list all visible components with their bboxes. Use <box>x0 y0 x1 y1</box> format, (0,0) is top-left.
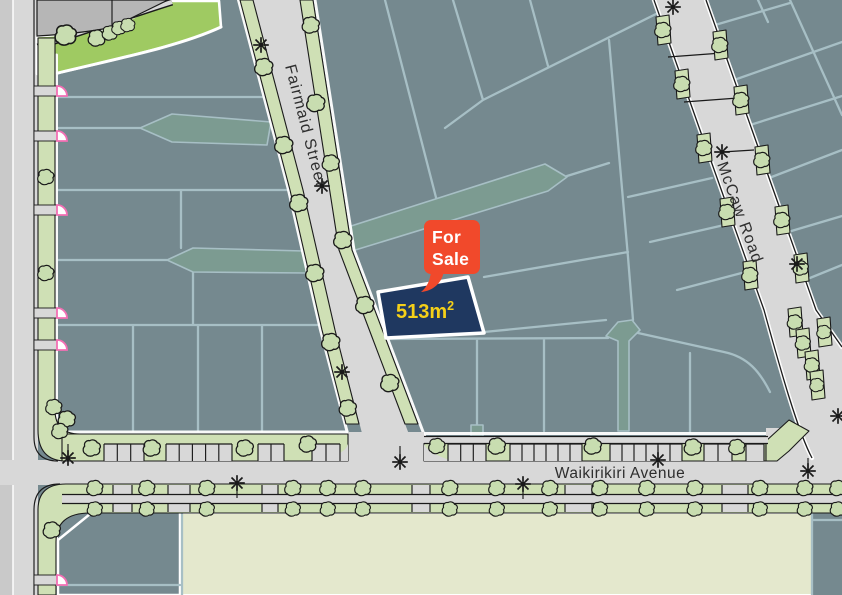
tree-icon <box>83 440 100 456</box>
tree-icon <box>592 480 608 495</box>
tree-icon <box>87 502 102 516</box>
street-light-icon <box>800 463 816 479</box>
tree-icon <box>320 480 336 495</box>
tree-icon <box>489 480 505 495</box>
tree-icon <box>592 502 607 516</box>
tree-icon <box>442 480 458 495</box>
tree-icon <box>489 502 504 516</box>
driveway-marker-icon <box>34 131 67 141</box>
flag-line-1: For <box>432 227 461 247</box>
tree-icon <box>356 296 374 313</box>
street-light-icon <box>392 454 408 470</box>
tree-icon <box>139 502 154 516</box>
tree-icon <box>199 502 214 516</box>
tree-icon <box>38 169 54 184</box>
tree-icon <box>255 58 273 75</box>
driveway-marker-icon <box>34 205 67 215</box>
tree-icon <box>687 480 703 495</box>
tree-icon <box>774 212 790 227</box>
tree-icon <box>584 438 601 454</box>
tree-icon <box>752 480 768 495</box>
tree-icon <box>684 439 701 455</box>
tree-icon <box>830 480 842 495</box>
tree-icon <box>139 480 155 495</box>
tree-icon <box>322 333 340 350</box>
flag-line-2: Sale <box>432 249 469 269</box>
tree-icon <box>830 502 842 516</box>
tree-icon <box>299 436 316 452</box>
tree-icon <box>729 439 745 454</box>
driveway-marker-icon <box>34 308 67 318</box>
tree-icon <box>804 358 819 372</box>
tree-icon <box>810 378 824 391</box>
driveway-marker-icon <box>34 575 67 585</box>
tree-icon <box>46 399 62 414</box>
tree-icon <box>752 502 767 516</box>
tree-icon <box>121 18 135 31</box>
street-light-icon <box>253 37 269 53</box>
street-light-icon <box>515 476 531 492</box>
street-label-waikirikiri: Waikirikiri Avenue <box>555 465 685 482</box>
park-area <box>182 513 812 595</box>
street-light-icon <box>789 256 805 272</box>
tree-icon <box>429 438 445 453</box>
tree-icon <box>754 152 770 167</box>
tree-icon <box>674 76 690 91</box>
driveway-marker-icon <box>34 86 67 96</box>
tree-icon <box>199 480 215 495</box>
tree-icon <box>55 25 76 45</box>
tree-icon <box>275 136 293 153</box>
subdivision-map: 513m2 For Sale Fairmaid Street McCaw Roa… <box>0 0 842 595</box>
tree-icon <box>306 264 324 281</box>
tree-icon <box>285 480 301 495</box>
driveway-marker-icon <box>34 340 67 350</box>
tree-icon <box>285 502 300 516</box>
tree-icon <box>712 37 728 52</box>
tree-icon <box>334 231 352 248</box>
tree-icon <box>302 17 319 33</box>
tree-icon <box>687 502 702 516</box>
tree-icon <box>542 480 558 495</box>
tree-icon <box>236 440 253 456</box>
street-light-icon <box>714 144 730 160</box>
tree-icon <box>52 423 68 438</box>
left-road <box>0 0 38 595</box>
tree-icon <box>355 480 371 495</box>
tree-icon <box>355 502 370 516</box>
tree-icon <box>696 140 712 155</box>
lot-area-label: 513m2 <box>396 299 454 323</box>
tree-icon <box>733 92 749 107</box>
tree-icon <box>143 440 160 456</box>
tree-icon <box>320 502 335 516</box>
tree-icon <box>655 22 671 37</box>
tree-icon <box>488 438 505 454</box>
tree-icon <box>817 325 831 338</box>
tree-icon <box>442 502 457 516</box>
tree-icon <box>742 267 758 282</box>
tree-icon <box>797 480 813 495</box>
map-canvas: 513m2 For Sale Fairmaid Street McCaw Roa… <box>0 0 842 595</box>
street-light-icon <box>60 450 76 466</box>
street-light-icon <box>229 475 245 491</box>
tree-icon <box>43 522 60 538</box>
tree-icon <box>639 480 655 495</box>
tree-icon <box>339 400 356 416</box>
tree-icon <box>797 502 812 516</box>
tree-icon <box>639 502 654 516</box>
street-light-icon <box>334 364 350 380</box>
tree-icon <box>795 336 810 350</box>
tree-icon <box>38 265 54 280</box>
tree-icon <box>542 502 557 516</box>
tree-icon <box>381 374 399 391</box>
tree-icon <box>290 194 308 211</box>
tree-icon <box>87 480 103 495</box>
tree-icon <box>787 315 802 329</box>
